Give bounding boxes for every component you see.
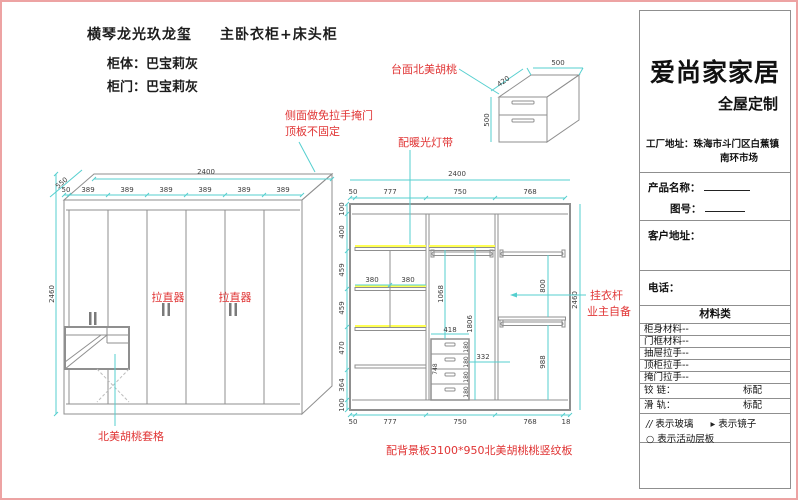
dim-bot-3: 768 — [523, 418, 536, 426]
drawing-svg: 2400 550 2460 50 389 389 389 389 389 389… — [2, 2, 637, 500]
walnut-top-label: 台面北美胡桃 — [391, 62, 457, 76]
dim-left-3: 459 — [338, 301, 346, 314]
dim-top-2: 750 — [453, 188, 466, 196]
dim-drawer-offset: 332 — [476, 353, 489, 361]
wardrobe-front-view — [64, 174, 332, 414]
nightstand-right-face — [547, 75, 579, 142]
walnut-top-leader — [459, 69, 499, 94]
material-row-doorframe: 门框材料-- — [640, 336, 790, 348]
legend-mirror-text: 表示镜子 — [718, 419, 756, 430]
legend-mirror: ▸表示镜子 — [710, 419, 756, 430]
dim-ns-width: 500 — [551, 59, 564, 67]
dim-left-2: 459 — [338, 263, 346, 276]
light-strips — [355, 245, 495, 328]
hanger-leader-arrow — [510, 293, 517, 298]
dim-door-3: 389 — [159, 186, 172, 194]
dim-rod2: 988 — [539, 355, 547, 368]
dim-door-5: 389 — [237, 186, 250, 194]
door-handles — [89, 303, 237, 325]
drawing-no-label: 图号： — [670, 203, 702, 215]
dim-shelf-380b: 380 — [401, 276, 414, 284]
materials-header: 材料类 — [640, 306, 790, 324]
side-door-label-1: 侧面做免拉手掩门 — [285, 108, 373, 122]
light-strip-label: 配暖光灯带 — [398, 135, 453, 149]
movable-shelf-icon: ○ — [646, 432, 654, 447]
nightstand-view — [499, 75, 579, 142]
product-name-label: 产品名称： — [648, 182, 701, 194]
company-section: 爱尚家家居 全屋定制 工厂地址：珠海市斗门区白蕉镇 南环市场 — [640, 11, 790, 173]
dim-drawer-h0: 180 — [463, 341, 470, 353]
hanger-label-2: 业主自备 — [587, 304, 631, 318]
dim-drawer-stack: 748 — [432, 363, 439, 375]
legend-glass: //表示玻璃 — [646, 419, 693, 430]
dim-ns-depth: 420 — [496, 74, 512, 88]
rail-label: 滑 轨： — [644, 399, 676, 413]
dim-shelf-380a: 380 — [365, 276, 378, 284]
front-view-dimensions — [50, 170, 334, 416]
dim-drawer-h3: 180 — [463, 386, 470, 398]
drawing-sheet: 横琴龙光玖龙玺主卧衣柜+床头柜 柜体：巴宝莉灰 柜门：巴宝莉灰 — [0, 0, 798, 500]
material-row-top-handle: 顶柜拉手-- — [640, 360, 790, 372]
dim-bot-2: 750 — [453, 418, 466, 426]
drawing-no-row: 图号： — [640, 201, 790, 216]
material-row-drawer-handle: 抽屉拉手-- — [640, 348, 790, 360]
dim-ticks — [54, 172, 334, 416]
hinge-value: 标配 — [743, 384, 762, 398]
dim-drawer-width: 418 — [443, 326, 456, 334]
company-tagline: 全屋定制 — [640, 93, 790, 114]
dim-left-4: 470 — [338, 341, 346, 354]
dim-door-1: 389 — [81, 186, 94, 194]
dim-left-6: 100 — [338, 398, 346, 411]
dim-rod1: 800 — [539, 279, 547, 292]
product-name-row: 产品名称： — [640, 180, 790, 195]
side-door-label-2: 顶板不固定 — [285, 124, 340, 138]
front-face — [64, 200, 302, 414]
legend-shelf-text: 表示活动层板 — [657, 434, 714, 445]
drawing-no-blank — [705, 202, 745, 212]
company-name: 爱尚家家居 — [640, 11, 790, 89]
dim-top-0: 50 — [349, 188, 358, 196]
hinge-label: 铰 链： — [644, 384, 676, 398]
rail-value: 标配 — [743, 399, 762, 413]
dim-front-width: 2400 — [197, 168, 215, 176]
dim-door-6: 389 — [276, 186, 289, 194]
dim-bot-1: 777 — [383, 418, 396, 426]
front-right-face — [302, 174, 332, 414]
material-row-body: 柜身材料-- — [640, 324, 790, 336]
nightstand-top-face — [499, 75, 579, 97]
walnut-grid-box — [65, 327, 129, 369]
dim-top-1: 777 — [383, 188, 396, 196]
dim-drawer-h1: 180 — [463, 356, 470, 368]
straightener-label-1: 拉直器 — [152, 290, 185, 304]
dim-ns-height: 500 — [483, 113, 491, 126]
factory-address-label: 工厂地址： — [646, 139, 694, 150]
hidden-lines — [97, 369, 129, 402]
dim-top-3: 768 — [523, 188, 536, 196]
empty-section — [640, 443, 790, 490]
factory-address-line2: 南环市场 — [646, 152, 784, 166]
materials-section: 材料类 柜身材料-- 门框材料-- 抽屉拉手-- 顶柜拉手-- 掩门拉手-- 铰… — [640, 306, 790, 443]
phone-label: 电话： — [640, 271, 790, 306]
legend-line-1: //表示玻璃 ▸表示镜子 — [646, 417, 790, 432]
back-panel-label: 配背景板3100*950北美胡桃桃竖纹板 — [386, 443, 573, 457]
dim-left-0: 100 — [338, 202, 346, 215]
dim-hang1: 1068 — [437, 285, 445, 303]
dim-door-4: 389 — [198, 186, 211, 194]
dim-drawer-h2: 180 — [463, 371, 470, 383]
glass-icon: // — [646, 417, 652, 432]
factory-address: 工厂地址：珠海市斗门区白蕉镇 南环市场 — [640, 114, 790, 166]
mirror-icon: ▸ — [710, 417, 715, 432]
dim-front-height: 2460 — [48, 285, 56, 303]
dim-door-0: 50 — [62, 186, 71, 194]
dim-inner-width: 2400 — [448, 170, 466, 178]
dim-inner-height: 2460 — [571, 291, 579, 309]
product-name-blank — [704, 181, 750, 191]
hanger-label-1: 挂衣杆 — [590, 288, 623, 302]
dim-bot-0: 50 — [349, 418, 358, 426]
material-row-door-handle: 掩门拉手-- — [640, 372, 790, 384]
legend-glass-text: 表示玻璃 — [655, 419, 693, 430]
hinge-row: 铰 链：标配 — [640, 384, 790, 399]
walnut-grid-label: 北美胡桃套格 — [98, 429, 164, 443]
dim-hang2: 1806 — [466, 315, 474, 333]
rail-row: 滑 轨：标配 — [640, 399, 790, 414]
straightener-label-2: 拉直器 — [219, 290, 252, 304]
product-section: 产品名称： 图号： — [640, 173, 790, 221]
dim-left-1: 400 — [338, 225, 346, 238]
title-block: 爱尚家家居 全屋定制 工厂地址：珠海市斗门区白蕉镇 南环市场 产品名称： 图号：… — [639, 10, 791, 489]
wardrobe-inner-view — [350, 204, 570, 410]
dim-left-5: 364 — [338, 378, 346, 392]
dim-bot-4: 18 — [562, 418, 571, 426]
side-door-leader — [299, 142, 315, 172]
factory-address-line1: 珠海市斗门区白蕉镇 — [694, 139, 780, 150]
customer-address-label: 客户地址： — [640, 221, 790, 271]
dim-door-2: 389 — [120, 186, 133, 194]
